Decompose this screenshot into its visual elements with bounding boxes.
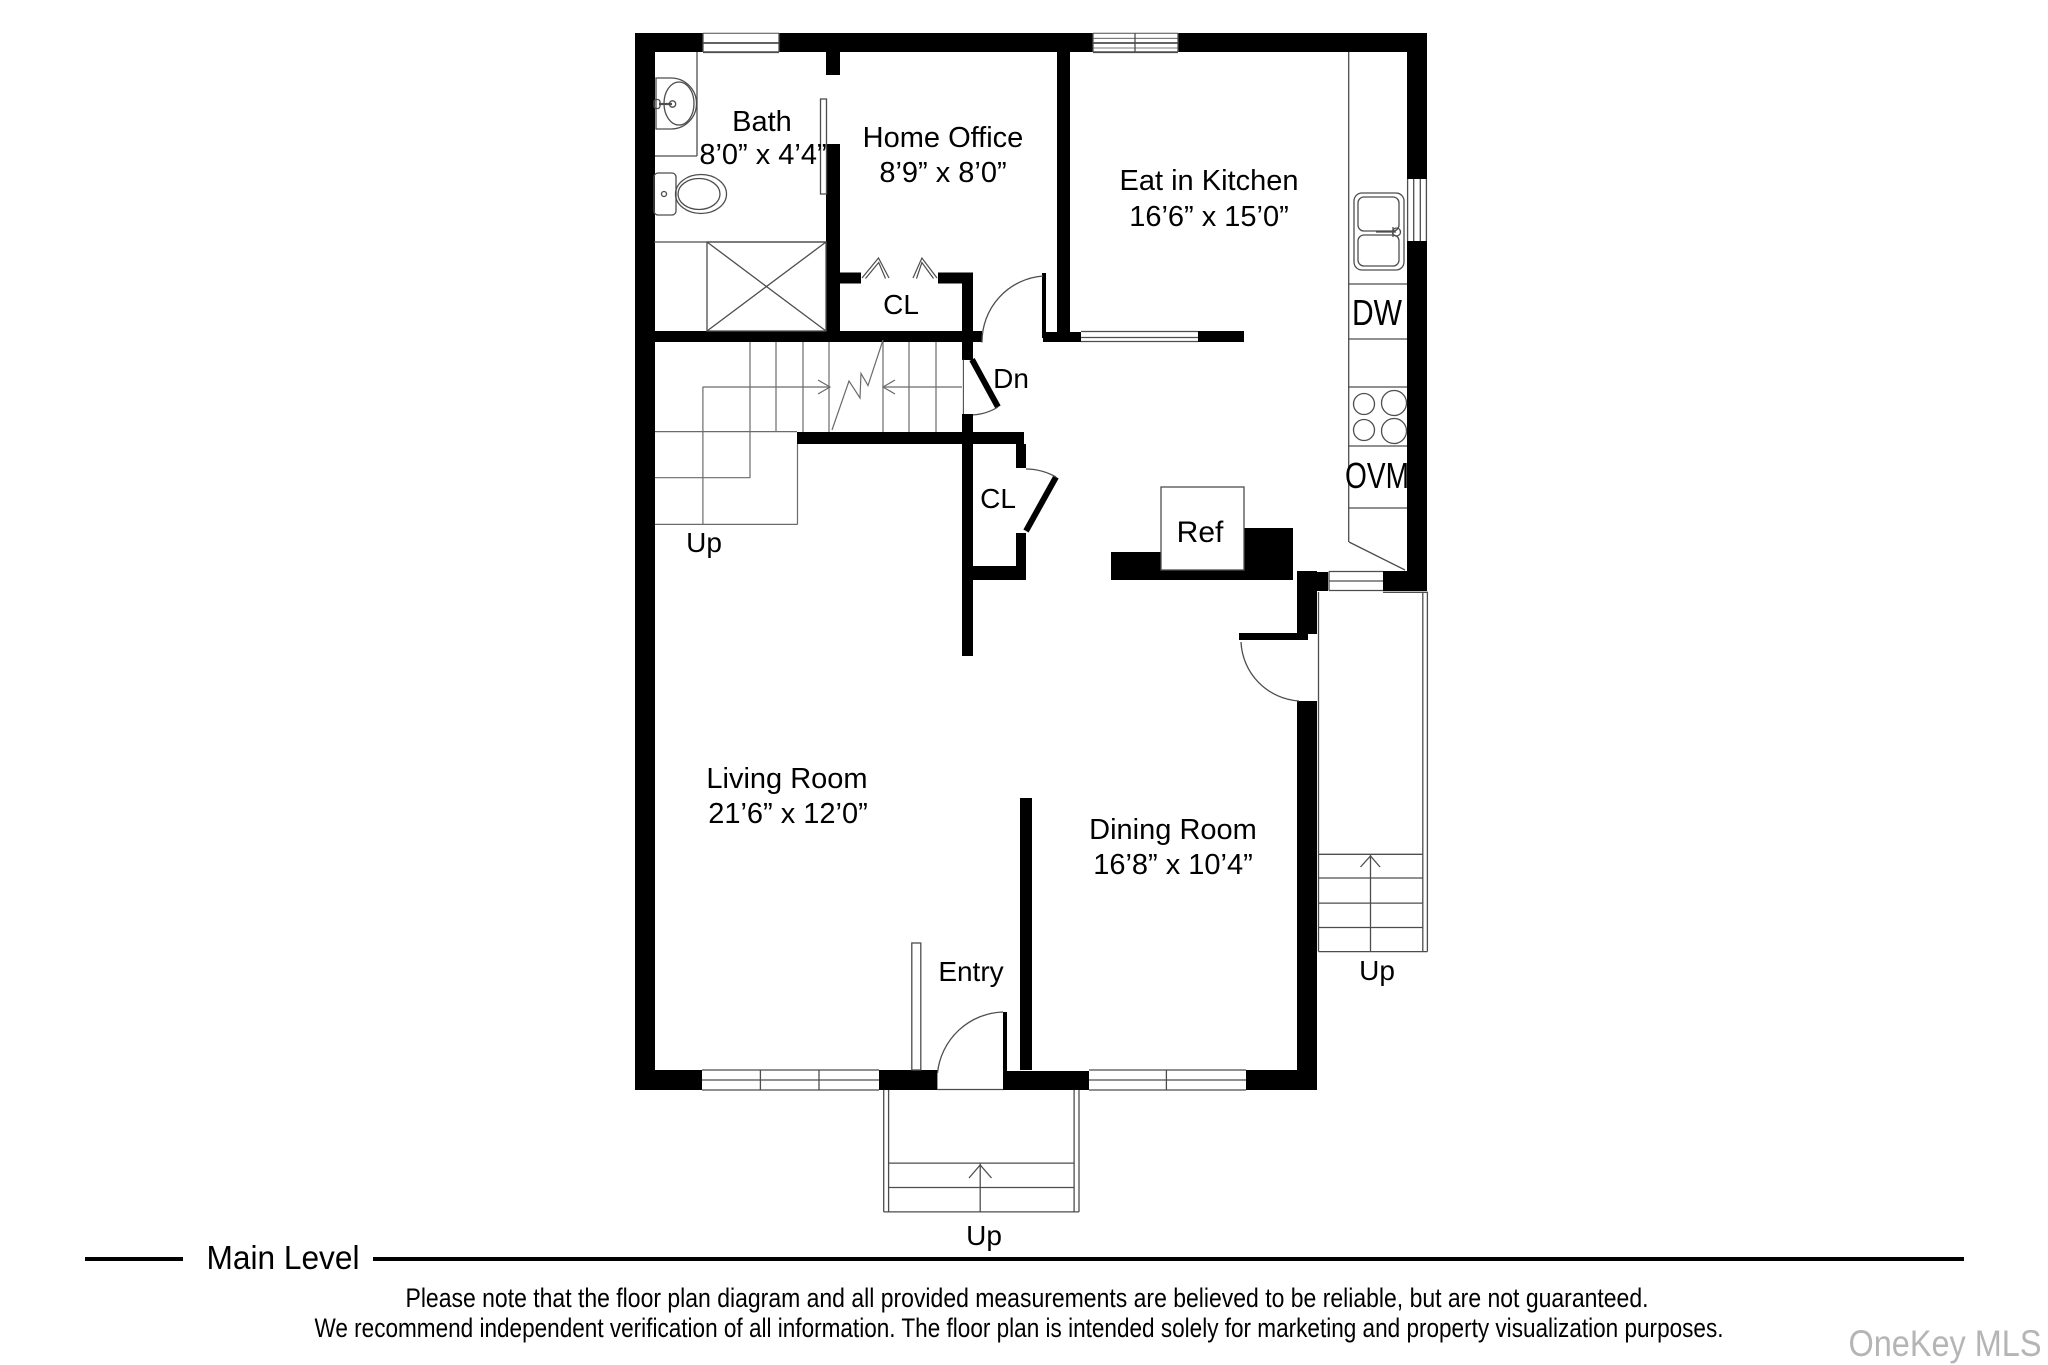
svg-text:16’8” x 10’4”: 16’8” x 10’4” <box>1093 849 1253 881</box>
svg-text:Up: Up <box>1359 955 1395 986</box>
svg-text:Home Office: Home Office <box>863 122 1024 154</box>
svg-text:Bath: Bath <box>732 106 792 138</box>
svg-text:Living Room: Living Room <box>706 763 867 795</box>
svg-text:Up: Up <box>686 527 722 558</box>
svg-text:16’6” x 15’0”: 16’6” x 15’0” <box>1129 201 1289 233</box>
svg-text:Dn: Dn <box>993 363 1029 394</box>
svg-text:OVM: OVM <box>1345 455 1409 496</box>
svg-text:OneKey MLS: OneKey MLS <box>1849 1323 2042 1364</box>
svg-text:Up: Up <box>966 1220 1002 1251</box>
svg-text:8’0” x 4’4”: 8’0” x 4’4” <box>699 139 826 171</box>
svg-text:We recommend independent verif: We recommend independent verification of… <box>315 1313 1724 1343</box>
svg-text:CL: CL <box>883 289 919 320</box>
svg-text:Eat in Kitchen: Eat in Kitchen <box>1120 165 1299 197</box>
svg-text:Dining Room: Dining Room <box>1089 814 1257 846</box>
svg-text:Please note that the floor pla: Please note that the floor plan diagram … <box>406 1283 1649 1313</box>
svg-text:Entry: Entry <box>938 956 1003 987</box>
svg-text:Ref: Ref <box>1177 516 1224 549</box>
svg-text:DW: DW <box>1352 292 1402 333</box>
svg-text:8’9” x 8’0”: 8’9” x 8’0” <box>879 157 1006 189</box>
svg-text:Main Level: Main Level <box>207 1240 360 1277</box>
svg-text:21’6” x 12’0”: 21’6” x 12’0” <box>708 798 868 830</box>
svg-text:CL: CL <box>980 483 1016 514</box>
